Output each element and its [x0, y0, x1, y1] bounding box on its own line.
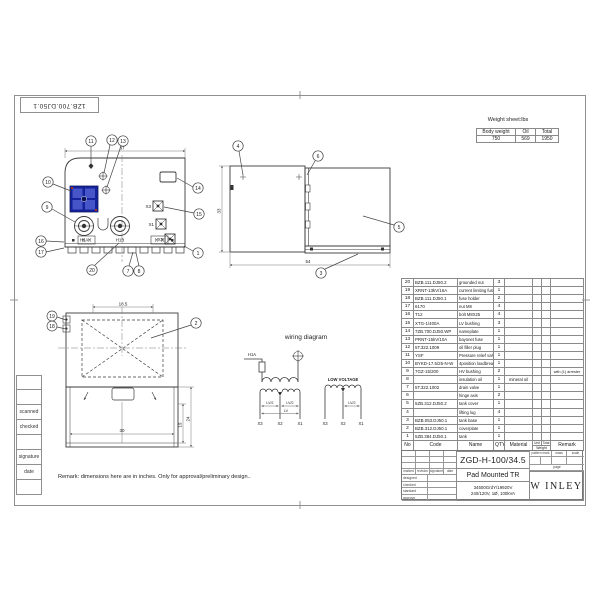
part-material: [505, 368, 533, 376]
part-no: 3: [402, 416, 414, 424]
part-material: [505, 343, 533, 351]
part-unit-weight: [533, 376, 542, 384]
part-qty: 2: [494, 295, 505, 303]
part-total-weight: [542, 400, 551, 408]
parts-row: 20 BZB.111.DJ50.2 grounded nut 3: [402, 279, 584, 287]
part-qty: 1: [494, 327, 505, 335]
part-unit-weight: [533, 424, 542, 432]
part-remark: [551, 287, 584, 295]
spec-line-2: 240/120V, 1Ø, 100kVA: [471, 491, 515, 497]
margin-cell-empty-4: [16, 480, 42, 495]
part-remark: [551, 376, 584, 384]
part-remark: [551, 416, 584, 424]
part-total-weight: [542, 416, 551, 424]
part-no: 8: [402, 376, 414, 384]
part-unit-weight: [533, 408, 542, 416]
parts-row: 14 7ZB.700.DJ50.WP nameplate 1: [402, 327, 584, 335]
part-no: 13: [402, 335, 414, 343]
part-code: BZB.053.DJ50.1: [414, 416, 458, 424]
part-code: BZB.312.DJ50.1: [414, 424, 458, 432]
drawing-sheet-page: 37 H1A H1B: [0, 0, 600, 600]
margin-cell-signature: signature: [16, 450, 42, 465]
part-no: 14: [402, 327, 414, 335]
part-no: 16: [402, 311, 414, 319]
weight-col-body: Body weight: [477, 129, 516, 136]
part-name: Pressure relief valve: [458, 351, 494, 359]
part-name: tank base: [458, 416, 494, 424]
revision-grid: [402, 451, 457, 469]
part-name: bayonet fuse: [458, 335, 494, 343]
part-name: 4position loadbreak: [458, 359, 494, 367]
part-material: [505, 432, 533, 440]
part-material: [505, 327, 533, 335]
part-no: 9: [402, 368, 414, 376]
part-remark: [551, 400, 584, 408]
part-code: YSF: [414, 351, 458, 359]
weight-col-oil: Oil: [516, 129, 536, 136]
margin-cell-date: date: [16, 465, 42, 480]
parts-row: 18 BZB.111.DJ50.1 fuse holder 2: [402, 295, 584, 303]
part-name: oil filler plug: [458, 343, 494, 351]
drawing-number: ZGD-H-100/34.5: [456, 451, 530, 469]
part-unit-weight: [533, 327, 542, 335]
part-total-weight: [542, 351, 551, 359]
header-weight: Unit Total Weight: [533, 440, 551, 450]
part-qty: 3: [494, 319, 505, 327]
part-code: [414, 408, 458, 416]
part-material: [505, 287, 533, 295]
part-remark: [551, 384, 584, 392]
parts-row: 10 BYKD-17.5/25-N-W 4position loadbreak …: [402, 359, 584, 367]
part-remark: [551, 408, 584, 416]
part-name: lifting lug: [458, 408, 494, 416]
part-unit-weight: [533, 279, 542, 287]
part-code: [414, 392, 458, 400]
part-code: BYKD-17.5/25-N-W: [414, 359, 458, 367]
part-no: 12: [402, 343, 414, 351]
part-name: coverplate: [458, 424, 494, 432]
sign-label-approve: approve: [402, 495, 428, 502]
part-material: [505, 416, 533, 424]
part-total-weight: [542, 335, 551, 343]
part-remark: [551, 303, 584, 311]
part-remark: [551, 295, 584, 303]
parts-row: 3 BZB.053.DJ50.1 tank base 1: [402, 416, 584, 424]
header-no: No: [402, 440, 414, 450]
parts-row: 17 6170 nut M8 4: [402, 303, 584, 311]
margin-cell-empty-3: [16, 435, 42, 450]
part-remark: [551, 392, 584, 400]
part-total-weight: [542, 384, 551, 392]
sign-row-approve: approve: [402, 495, 457, 502]
part-total-weight: [542, 295, 551, 303]
part-total-weight: [542, 303, 551, 311]
part-material: [505, 311, 533, 319]
part-code: 6170: [414, 303, 458, 311]
part-code: T12: [414, 311, 458, 319]
small-boxes-row: [529, 457, 584, 465]
part-total-weight: [542, 392, 551, 400]
brand-logo: W INLEY: [529, 471, 584, 501]
part-material: [505, 319, 533, 327]
product-name: Pad Mounted TR: [456, 468, 530, 482]
part-total-weight: [542, 424, 551, 432]
part-material: [505, 303, 533, 311]
part-unit-weight: [533, 335, 542, 343]
parts-row: 16 T12 bolt M8X25 4: [402, 311, 584, 319]
part-material: [505, 424, 533, 432]
margin-cell-scanned: scanned: [16, 405, 42, 420]
part-name: bolt M8X25: [458, 311, 494, 319]
header-material: Material: [505, 440, 533, 450]
part-unit-weight: [533, 319, 542, 327]
part-total-weight: [542, 432, 551, 440]
part-remark: [551, 327, 584, 335]
part-code: 7ZB.700.DJ50.WP: [414, 327, 458, 335]
parts-row: 1 5ZB.384.DJ50.1 tank 1: [402, 432, 584, 440]
part-no: 1: [402, 432, 414, 440]
part-name: tank: [458, 432, 494, 440]
part-qty: 1: [494, 351, 505, 359]
weight-oil-value: 569: [516, 136, 536, 143]
part-unit-weight: [533, 384, 542, 392]
part-name: nameplate: [458, 327, 494, 335]
margin-cell-checked: checked: [16, 420, 42, 435]
part-name: drain valve: [458, 384, 494, 392]
part-qty: 1: [494, 335, 505, 343]
part-name: tank cover: [458, 400, 494, 408]
part-material: [505, 279, 533, 287]
part-unit-weight: [533, 311, 542, 319]
part-qty: 3: [494, 279, 505, 287]
part-remark: [551, 343, 584, 351]
part-qty: 4: [494, 311, 505, 319]
part-code: 5ZB.384.DJ50.1: [414, 432, 458, 440]
part-qty: 1: [494, 424, 505, 432]
part-no: 5: [402, 400, 414, 408]
parts-row: 8 insulation oil 1 mineral oil: [402, 376, 584, 384]
part-total-weight: [542, 327, 551, 335]
part-code: XTG-1/400A: [414, 319, 458, 327]
part-remark: [551, 319, 584, 327]
part-total-weight: [542, 408, 551, 416]
margin-cell-empty-2: [16, 390, 42, 405]
part-code: 5T.322.1009: [414, 343, 458, 351]
part-remark: [551, 335, 584, 343]
part-remark: with (1) arrester: [551, 368, 584, 376]
part-code: 5ZB.312.DJ50.2: [414, 400, 458, 408]
weight-total-value: 1950: [536, 136, 559, 143]
part-material: [505, 351, 533, 359]
parts-row: 6 hinge axis 2: [402, 392, 584, 400]
header-remark: Remark: [551, 440, 584, 450]
part-material: [505, 335, 533, 343]
weight-header-row: Body weight Oil Total: [477, 129, 559, 136]
part-name: HV bushing: [458, 368, 494, 376]
header-weight-total: Total: [542, 441, 550, 445]
part-qty: 1: [494, 416, 505, 424]
part-qty: 1: [494, 376, 505, 384]
part-total-weight: [542, 279, 551, 287]
weight-values-row: 750 569 1950: [477, 136, 559, 143]
part-code: 5T.322.1002: [414, 384, 458, 392]
part-remark: [551, 424, 584, 432]
parts-row: 7 5T.322.1002 drain valve 1: [402, 384, 584, 392]
part-remark: [551, 351, 584, 359]
header-weight-unit: Unit: [533, 441, 542, 445]
part-code: PRNT-15kV/10A: [414, 335, 458, 343]
part-total-weight: [542, 319, 551, 327]
part-name: fuse holder: [458, 295, 494, 303]
part-code: BZB.111.DJ50.2: [414, 279, 458, 287]
part-material: [505, 295, 533, 303]
part-total-weight: [542, 311, 551, 319]
weight-sheet-title: Weight sheet:lbs: [462, 117, 554, 123]
margin-cell-empty-1: [16, 375, 42, 390]
remark-note: Remark: dimensions here are in inches. O…: [58, 474, 251, 480]
parts-row: 4 lifting lug 4: [402, 408, 584, 416]
part-code: BZB.111.DJ50.1: [414, 295, 458, 303]
part-name: grounded nut: [458, 279, 494, 287]
part-unit-weight: [533, 295, 542, 303]
doc-number-box: 1ZB.700.DJ50.1: [20, 97, 99, 113]
part-unit-weight: [533, 400, 542, 408]
weight-sheet-table: Body weight Oil Total 750 569 1950: [476, 128, 559, 143]
part-unit-weight: [533, 416, 542, 424]
part-material: mineral oil: [505, 376, 533, 384]
part-no: 20: [402, 279, 414, 287]
parts-row: 5 5ZB.312.DJ50.2 tank cover 1: [402, 400, 584, 408]
part-qty: 1: [494, 359, 505, 367]
weight-body-value: 750: [477, 136, 516, 143]
part-total-weight: [542, 376, 551, 384]
title-block: marked revision signature date designed …: [401, 450, 583, 500]
part-material: [505, 408, 533, 416]
part-unit-weight: [533, 351, 542, 359]
part-name: hinge axis: [458, 392, 494, 400]
part-remark: [551, 432, 584, 440]
part-material: [505, 384, 533, 392]
part-unit-weight: [533, 287, 542, 295]
part-qty: 1: [494, 400, 505, 408]
part-qty: 1: [494, 432, 505, 440]
parts-row: 13 PRNT-15kV/10A bayonet fuse 1: [402, 335, 584, 343]
part-material: [505, 359, 533, 367]
part-qty: 2: [494, 368, 505, 376]
part-unit-weight: [533, 432, 542, 440]
part-material: [505, 392, 533, 400]
parts-row: 12 5T.322.1009 oil filler plug 1: [402, 343, 584, 351]
header-code: Code: [414, 440, 458, 450]
part-remark: [551, 311, 584, 319]
part-name: insulation oil: [458, 376, 494, 384]
part-remark: [551, 279, 584, 287]
part-no: 10: [402, 359, 414, 367]
part-no: 15: [402, 319, 414, 327]
parts-header-row: No Code Name QTY Material Unit Total Wei…: [402, 440, 584, 450]
parts-row: 15 XTG-1/400A LV bushing 3: [402, 319, 584, 327]
parts-table: 20 BZB.111.DJ50.2 grounded nut 3 19 XRNT…: [401, 278, 584, 451]
part-code: 7GZ-15/200: [414, 368, 458, 376]
part-unit-weight: [533, 343, 542, 351]
parts-row: 19 XRNT-13kV/16A current limiting fuse 1: [402, 287, 584, 295]
part-qty: 2: [494, 392, 505, 400]
spec-cell: 34500GrdY/19920V 240/120V, 1Ø, 100kVA: [456, 481, 530, 501]
part-name: nut M8: [458, 303, 494, 311]
part-no: 19: [402, 287, 414, 295]
part-no: 17: [402, 303, 414, 311]
part-qty: 4: [494, 303, 505, 311]
margin-strip: scanned checked signature date: [16, 375, 42, 495]
part-unit-weight: [533, 359, 542, 367]
parts-row: 11 YSF Pressure relief valve 1: [402, 351, 584, 359]
part-code: [414, 376, 458, 384]
part-name: LV bushing: [458, 319, 494, 327]
part-total-weight: [542, 368, 551, 376]
part-no: 2: [402, 424, 414, 432]
doc-number-rotated: 1ZB.700.DJ50.1: [33, 102, 86, 109]
part-unit-weight: [533, 392, 542, 400]
part-code: XRNT-13kV/16A: [414, 287, 458, 295]
part-qty: 1: [494, 384, 505, 392]
part-no: 18: [402, 295, 414, 303]
part-remark: [551, 359, 584, 367]
part-no: 6: [402, 392, 414, 400]
part-unit-weight: [533, 368, 542, 376]
part-material: [505, 400, 533, 408]
header-name: Name: [458, 440, 494, 450]
weight-col-total: Total: [536, 129, 559, 136]
part-qty: 1: [494, 287, 505, 295]
part-total-weight: [542, 287, 551, 295]
part-qty: 1: [494, 343, 505, 351]
part-no: 11: [402, 351, 414, 359]
parts-row: 9 7GZ-15/200 HV bushing 2 with (1) arres…: [402, 368, 584, 376]
part-unit-weight: [533, 303, 542, 311]
parts-row: 2 BZB.312.DJ50.1 coverplate 1: [402, 424, 584, 432]
part-total-weight: [542, 343, 551, 351]
part-total-weight: [542, 359, 551, 367]
part-no: 7: [402, 384, 414, 392]
header-qty: QTY: [494, 440, 505, 450]
part-no: 4: [402, 408, 414, 416]
part-name: current limiting fuse: [458, 287, 494, 295]
part-qty: 4: [494, 408, 505, 416]
